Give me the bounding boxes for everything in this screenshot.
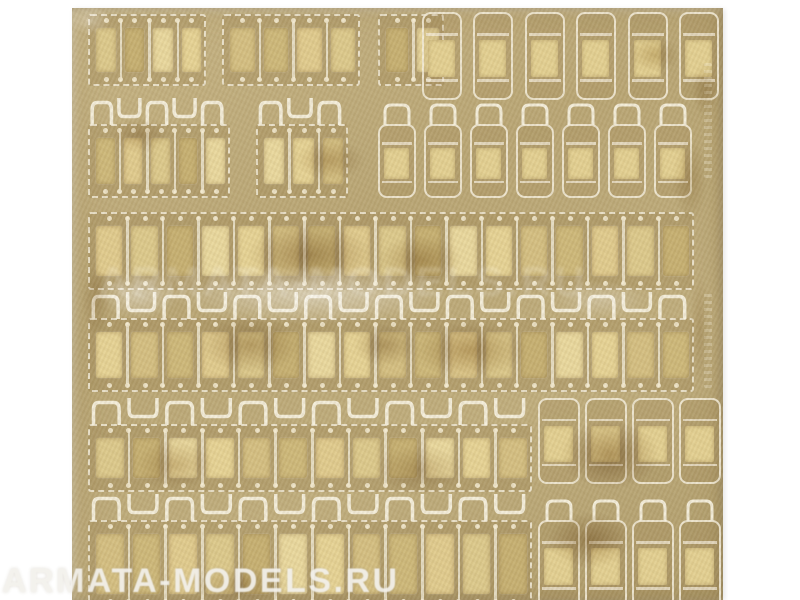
ghost-watermark: ARMATA-MODELS.RU — [98, 258, 588, 306]
product-photo: ARMATA-MODELS.RU ARMATA-MODELS.RU — [0, 0, 800, 600]
photo-etch-fret-sheet: ARMATA-MODELS.RU — [72, 8, 723, 600]
watermark-text: ARMATA-MODELS.RU — [2, 562, 400, 600]
